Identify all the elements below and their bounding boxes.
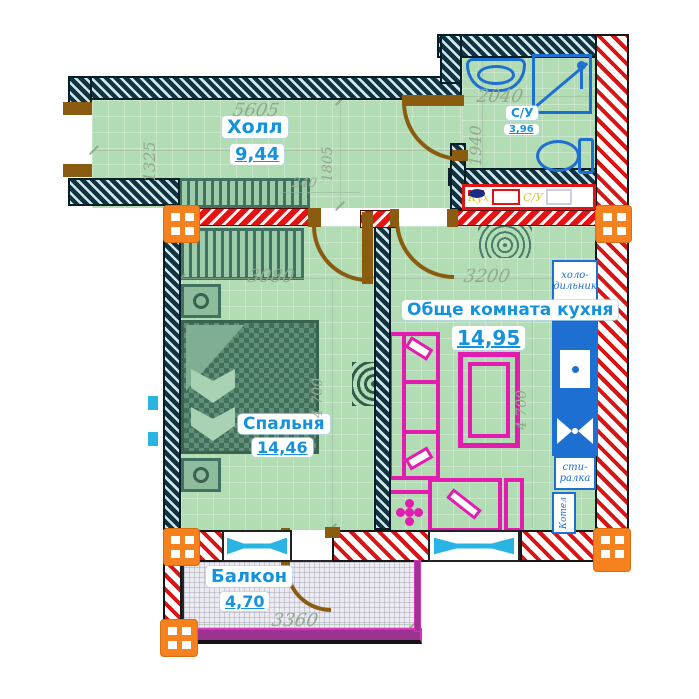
dim-living-width: 3200: [462, 266, 512, 287]
sofa-backrest: [402, 336, 406, 476]
lamp-icon: [193, 467, 209, 483]
living-door-post-left: [390, 209, 399, 227]
dim-line: [340, 100, 341, 207]
room-area-living: 14,95: [452, 326, 525, 350]
wall-tick-marker: [148, 432, 158, 446]
fridge-line1: холо-: [561, 270, 588, 282]
bed-pillow: [191, 407, 235, 441]
wardrobe-hall: [176, 178, 310, 208]
column-top-right: [595, 205, 632, 243]
wall-bottom-seg2: [332, 530, 430, 562]
counter-sink-icon: [546, 189, 572, 205]
room-label-balcony: Балкон: [206, 566, 292, 587]
wall-hall-bedroom: [198, 208, 310, 226]
stove-icon: [492, 189, 520, 205]
sofa-pillow: [404, 446, 433, 470]
wall-bottom-seg3: [520, 530, 597, 562]
room-label-bathroom: С/У: [506, 106, 538, 120]
sink-dot: [572, 428, 578, 434]
wall-left-main: [163, 240, 181, 530]
window-balcony: [222, 530, 292, 562]
bed-pillow: [191, 369, 235, 403]
cabinet-panel: [560, 350, 590, 388]
rug-spiral: [478, 226, 532, 258]
column-top-left: [163, 205, 200, 243]
dim-bedroom-width: 3080: [246, 266, 296, 287]
toilet-tank: [578, 138, 594, 174]
room-area-bedroom: 14,46: [252, 438, 313, 457]
dim-bathroom-depth: 1940: [466, 92, 485, 166]
sofa: [388, 332, 440, 480]
column-balcony: [160, 619, 198, 657]
wall-balcony-left: [163, 562, 182, 622]
room-label-living: Обще комната кухня: [402, 300, 618, 320]
kitchen-sink-label: С/У: [523, 191, 543, 204]
shower-icon: [532, 54, 592, 114]
wall-bath-left: [440, 34, 462, 84]
bath-door-leaf: [402, 95, 464, 106]
kitchen-counter: Кух С/У: [462, 184, 596, 210]
column-bottom-right: [593, 528, 631, 572]
wall-hall-living: [450, 210, 597, 226]
plant-stand: [386, 490, 432, 534]
dim-line: [332, 278, 333, 528]
entry-door-jamb-bottom: [63, 164, 92, 177]
wall-right-outer: [595, 34, 629, 562]
sink-bowl-left: [557, 418, 572, 444]
boiler-text: Котел: [559, 497, 569, 529]
room-area-hall: 9,44: [230, 144, 284, 165]
washer-line2: ралка: [560, 473, 591, 485]
bedroom-door-post: [308, 208, 321, 227]
dim-bedroom-depth: 4 700: [310, 338, 326, 418]
washer-label: сти- ралка: [554, 456, 596, 490]
wall-partition: [374, 226, 391, 530]
window-glass-icon: [434, 535, 515, 556]
balcony-right-edge: [414, 560, 421, 632]
room-area-bathroom: 3,96: [504, 124, 539, 135]
fridge-label: холо- дильник: [552, 260, 598, 302]
cabinet-handle: [572, 366, 579, 373]
entry-door-jamb-top: [63, 102, 92, 115]
dim-hall-depth: 1325: [140, 108, 159, 182]
couch-pillow: [446, 488, 482, 520]
living-door-post-right: [447, 209, 458, 227]
sofa-divider: [402, 430, 436, 434]
nightstand-bottom: [181, 458, 221, 492]
dim-doorway: 240: [291, 176, 318, 191]
dim-hall-inner: 1805: [320, 124, 336, 182]
wall-tick-marker: [148, 396, 158, 410]
dim-line: [280, 192, 360, 193]
coffee-table: [458, 352, 520, 448]
shower-pole: [580, 67, 583, 89]
nightstand-top: [181, 284, 221, 318]
lamp-icon: [193, 293, 209, 309]
dim-hall-width: 5605: [231, 100, 281, 121]
boiler-label: Котел: [552, 492, 576, 534]
balcony-door-post: [325, 527, 340, 538]
room-area-balcony: 4,70: [220, 592, 269, 611]
floor-plan: Кух С/У холо- дильник сти- ралка Котел Х…: [0, 0, 699, 699]
bedroom-door-leaf: [362, 212, 373, 284]
window-living: [428, 530, 520, 562]
sofa-pillow: [405, 336, 434, 361]
sink-bowl: [477, 65, 515, 85]
tv-unit: [352, 362, 374, 406]
column-bottom-left: [163, 528, 200, 566]
window-glass-icon: [227, 535, 288, 556]
fridge-line2: дильник: [553, 281, 597, 293]
sofa-divider: [402, 380, 436, 384]
kitchen-run: [552, 312, 598, 456]
side-table: [504, 478, 524, 532]
sink-bowl-right: [578, 418, 593, 444]
sink-basin: [469, 189, 485, 198]
wall-hall-left-lower: [68, 178, 180, 206]
dim-living-depth: 4 700: [514, 350, 530, 430]
table-inner: [468, 362, 510, 438]
dim-balcony-width: 3360: [270, 610, 320, 631]
washer-line1: сти-: [563, 462, 588, 474]
couch: [428, 478, 502, 532]
toilet-icon: [536, 140, 580, 172]
plant-icon: [405, 508, 414, 517]
